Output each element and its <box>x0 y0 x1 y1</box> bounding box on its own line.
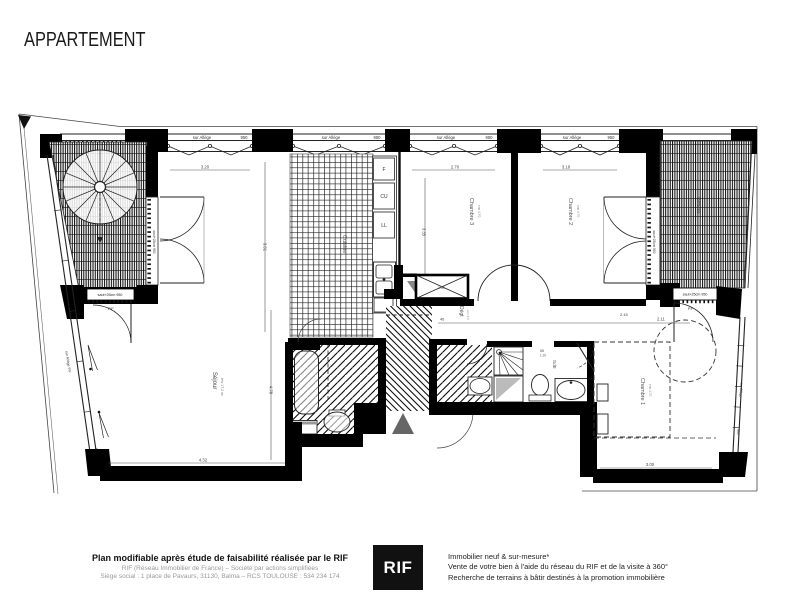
svg-text:env 4.70: env 4.70 <box>477 205 481 217</box>
svg-text:sur Allège: sur Allège <box>437 135 456 140</box>
svg-text:F: F <box>382 167 385 173</box>
svg-text:P.F: P.F <box>108 306 114 311</box>
svg-text:3.51: 3.51 <box>263 243 268 252</box>
svg-text:env 4.70: env 4.70 <box>648 384 652 396</box>
svg-text:2.15: 2.15 <box>620 312 629 317</box>
svg-text:3.35: 3.35 <box>422 228 427 237</box>
svg-text:saut+25cm 950: saut+25cm 950 <box>683 293 708 297</box>
svg-text:950: 950 <box>486 135 494 140</box>
svg-text:2.11: 2.11 <box>657 317 666 322</box>
svg-text:CU: CU <box>380 194 388 200</box>
svg-text:SdE: SdE <box>552 360 557 369</box>
svg-text:950: 950 <box>736 429 740 435</box>
svg-text:55: 55 <box>540 349 544 353</box>
svg-text:env 4.70: env 4.70 <box>576 205 580 217</box>
svg-text:Cuisine: Cuisine <box>341 235 347 253</box>
svg-text:3.00: 3.00 <box>646 462 655 467</box>
svg-text:saut+25cm 950: saut+25cm 950 <box>152 230 156 253</box>
svg-text:950: 950 <box>241 135 249 140</box>
svg-text:sur Allège: sur Allège <box>193 135 212 140</box>
svg-text:950: 950 <box>608 135 616 140</box>
svg-text:saut+25cm 950: saut+25cm 950 <box>98 293 123 297</box>
svg-text:3.18: 3.18 <box>562 165 571 170</box>
svg-text:sur Allège: sur Allège <box>739 383 744 398</box>
svg-text:env 17.2 m²: env 17.2 m² <box>220 378 224 397</box>
svg-text:saut+25cm 950: saut+25cm 950 <box>652 230 656 253</box>
svg-text:env 2.5: env 2.5 <box>466 310 470 320</box>
svg-text:3.20: 3.20 <box>201 165 210 170</box>
svg-text:950: 950 <box>374 135 382 140</box>
svg-text:sur Allège: sur Allège <box>322 135 341 140</box>
svg-text:Chambre 3: Chambre 3 <box>468 198 474 225</box>
svg-text:sur Allège: sur Allège <box>563 135 582 140</box>
svg-text:Séjour: Séjour <box>211 372 217 389</box>
svg-text:46: 46 <box>440 318 444 322</box>
svg-text:Chambre 2: Chambre 2 <box>567 198 573 225</box>
svg-text:4.78: 4.78 <box>269 386 274 395</box>
svg-text:2.70: 2.70 <box>451 165 460 170</box>
svg-text:4.32: 4.32 <box>199 458 208 463</box>
svg-text:1.20: 1.20 <box>540 354 547 358</box>
svg-text:sur Allège P.F: sur Allège P.F <box>64 351 72 374</box>
svg-text:1.00: 1.00 <box>438 286 445 290</box>
svg-text:LL: LL <box>381 223 387 229</box>
svg-text:Dégt: Dégt <box>458 306 464 317</box>
svg-text:Chambre 1: Chambre 1 <box>639 378 645 405</box>
svg-text:Terrasse: Terrasse <box>696 196 701 214</box>
